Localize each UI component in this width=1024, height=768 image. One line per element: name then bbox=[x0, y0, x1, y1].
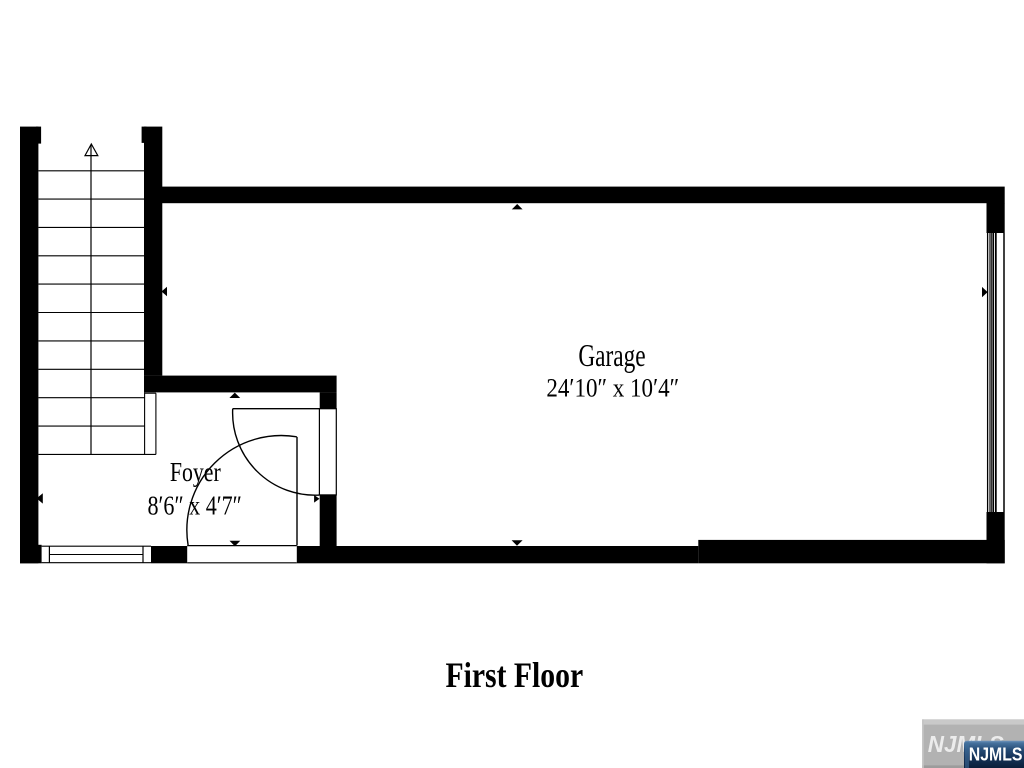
svg-text:First Floor: First Floor bbox=[445, 655, 583, 695]
svg-text:24′10″ x 10′4″: 24′10″ x 10′4″ bbox=[546, 372, 679, 402]
svg-text:Garage: Garage bbox=[578, 338, 645, 373]
svg-text:NJMLS: NJMLS bbox=[969, 745, 1023, 765]
svg-text:Foyer: Foyer bbox=[170, 457, 221, 487]
svg-text:8′6″ x 4′7″: 8′6″ x 4′7″ bbox=[148, 490, 242, 520]
